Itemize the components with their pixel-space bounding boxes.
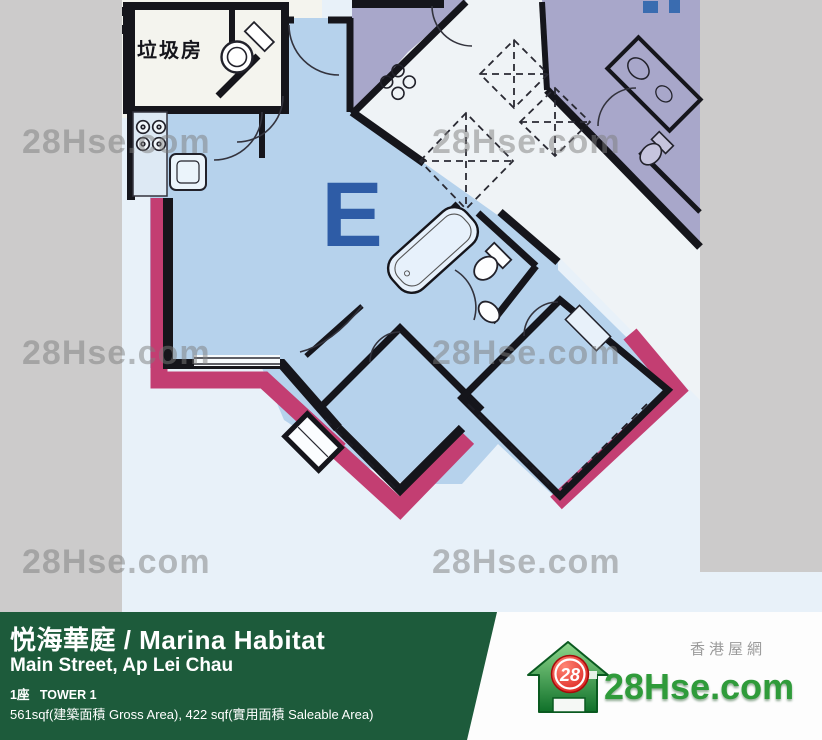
floor-plan-svg: E 垃圾房 28Hse.com 28Hse.com 28Hse.com 28Hs… [0, 0, 822, 615]
neighbor-label-fragment [643, 1, 658, 13]
watermark: 28Hse.com [22, 334, 211, 372]
watermark: 28Hse.com [432, 123, 621, 161]
bottom-banner: 悦海華庭 / Marina Habitat Main Street, Ap Le… [0, 612, 822, 740]
wall-edge-mark [122, 7, 133, 16]
wall-edge-mark [122, 25, 133, 34]
28hse-logo: 28 香港屋網 28Hse.com [500, 612, 822, 740]
house-logo-icon: 28 [526, 641, 610, 713]
wall-top-band [352, 0, 444, 8]
watermark: 28Hse.com [432, 543, 621, 581]
watermark: 28Hse.com [22, 543, 211, 581]
floor-plan-image: E 垃圾房 28Hse.com 28Hse.com 28Hse.com 28Hs… [0, 0, 822, 615]
property-area: 561sqf(建築面積 Gross Area), 422 sqf(實用面積 Sa… [10, 704, 373, 723]
property-title: 悦海華庭 / Marina Habitat [10, 620, 325, 657]
property-tower: 1座 TOWER 1 [10, 684, 97, 703]
badge-number: 28 [559, 665, 580, 685]
property-info-banner: 悦海華庭 / Marina Habitat Main Street, Ap Le… [0, 612, 510, 740]
property-address: Main Street, Ap Lei Chau [10, 655, 233, 677]
house-door [553, 698, 585, 712]
watermark: 28Hse.com [22, 123, 211, 161]
site-name-chinese: 香港屋網 [690, 638, 766, 659]
garbage-room-label: 垃圾房 [137, 38, 203, 62]
watermark: 28Hse.com [432, 334, 621, 372]
floor-plan-page: E 垃圾房 28Hse.com 28Hse.com 28Hse.com 28Hs… [0, 0, 822, 740]
scan-background-extension [700, 572, 822, 615]
site-name: 28Hse.com [604, 666, 794, 708]
unit-e-entry-room [283, 18, 352, 110]
neighbor-label-fragment [669, 0, 680, 13]
unit-label: E [321, 164, 382, 266]
